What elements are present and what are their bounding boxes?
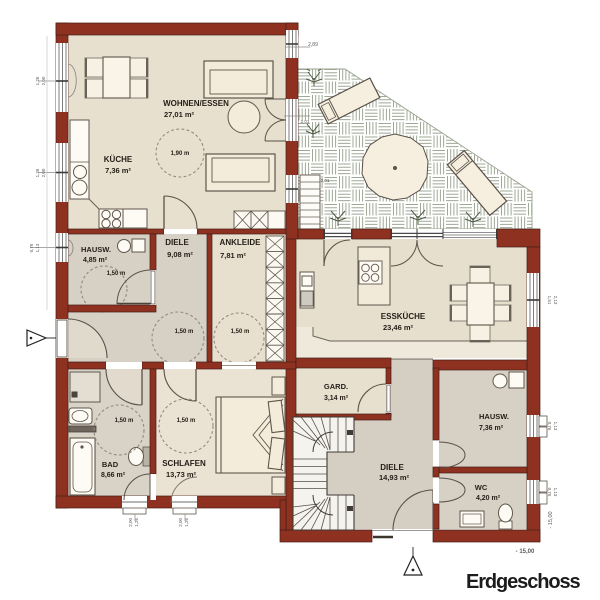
- svg-text:KÜCHE: KÜCHE: [104, 155, 133, 164]
- svg-text:23,46 m²: 23,46 m²: [383, 323, 414, 332]
- svg-text:7,36 m²: 7,36 m²: [105, 166, 131, 175]
- svg-text:2,89: 2,89: [308, 42, 318, 48]
- svg-text:4,20 m²: 4,20 m²: [476, 495, 501, 502]
- svg-text:WOHNEN/ESSEN: WOHNEN/ESSEN: [163, 99, 229, 108]
- svg-text:1,90 m: 1,90 m: [171, 151, 190, 157]
- svg-text:HAUSW.: HAUSW.: [479, 412, 509, 421]
- svg-text:1,13: 1,13: [553, 422, 558, 431]
- svg-text:1,26: 1,26: [35, 76, 40, 85]
- svg-text:- 15,00: - 15,00: [516, 549, 535, 555]
- svg-text:1,51: 1,51: [547, 296, 552, 305]
- svg-text:4,85 m²: 4,85 m²: [83, 257, 108, 264]
- svg-text:1,50 m: 1,50 m: [231, 329, 250, 335]
- svg-text:0,76: 0,76: [547, 488, 552, 497]
- svg-text:HAUSW.: HAUSW.: [81, 245, 111, 254]
- svg-text:2,13: 2,13: [553, 296, 558, 305]
- svg-text:DIELE: DIELE: [380, 463, 404, 472]
- svg-text:BAD: BAD: [102, 460, 119, 469]
- svg-text:1,50 m: 1,50 m: [107, 271, 126, 277]
- svg-text:1,50 m: 1,50 m: [177, 418, 196, 424]
- svg-text:8,66 m²: 8,66 m²: [101, 472, 126, 479]
- svg-text:0,76: 0,76: [547, 422, 552, 431]
- svg-text:1,13: 1,13: [553, 488, 558, 497]
- svg-text:DIELE: DIELE: [165, 238, 189, 247]
- svg-text:3,14 m²: 3,14 m²: [324, 395, 349, 402]
- svg-text:2,01: 2,01: [321, 178, 330, 183]
- svg-text:2,00: 2,00: [41, 168, 46, 177]
- svg-text:Erdgeschoss: Erdgeschoss: [466, 571, 580, 593]
- svg-text:ANKLEIDE: ANKLEIDE: [220, 238, 262, 247]
- svg-text:1,26: 1,26: [134, 518, 139, 527]
- svg-text:1,26: 1,26: [184, 518, 189, 527]
- svg-text:1,50 m: 1,50 m: [175, 329, 194, 335]
- svg-text:7,81 m²: 7,81 m²: [220, 251, 246, 260]
- svg-text:2,00: 2,00: [41, 76, 46, 85]
- svg-text:2,00: 2,00: [178, 518, 183, 527]
- svg-text:2,01: 2,01: [301, 119, 310, 124]
- svg-text:14,93 m²: 14,93 m²: [379, 473, 410, 482]
- svg-text:0,76: 0,76: [29, 243, 34, 252]
- svg-text:13,73 m²: 13,73 m²: [166, 470, 197, 479]
- svg-text:27,01 m²: 27,01 m²: [164, 110, 195, 119]
- svg-text:1,13: 1,13: [35, 243, 40, 252]
- svg-text:ESSKÜCHE: ESSKÜCHE: [381, 312, 426, 321]
- svg-text:9,08 m²: 9,08 m²: [167, 250, 193, 259]
- svg-text:SCHLAFEN: SCHLAFEN: [162, 459, 206, 468]
- svg-text:1,50 m: 1,50 m: [115, 418, 134, 424]
- svg-text:2,00: 2,00: [128, 518, 133, 527]
- svg-text:WC: WC: [475, 483, 488, 492]
- svg-text:GARD.: GARD.: [324, 382, 348, 391]
- svg-text:- 15,00: - 15,00: [548, 511, 554, 528]
- svg-text:7,36 m²: 7,36 m²: [479, 425, 504, 432]
- svg-text:1,26: 1,26: [35, 168, 40, 177]
